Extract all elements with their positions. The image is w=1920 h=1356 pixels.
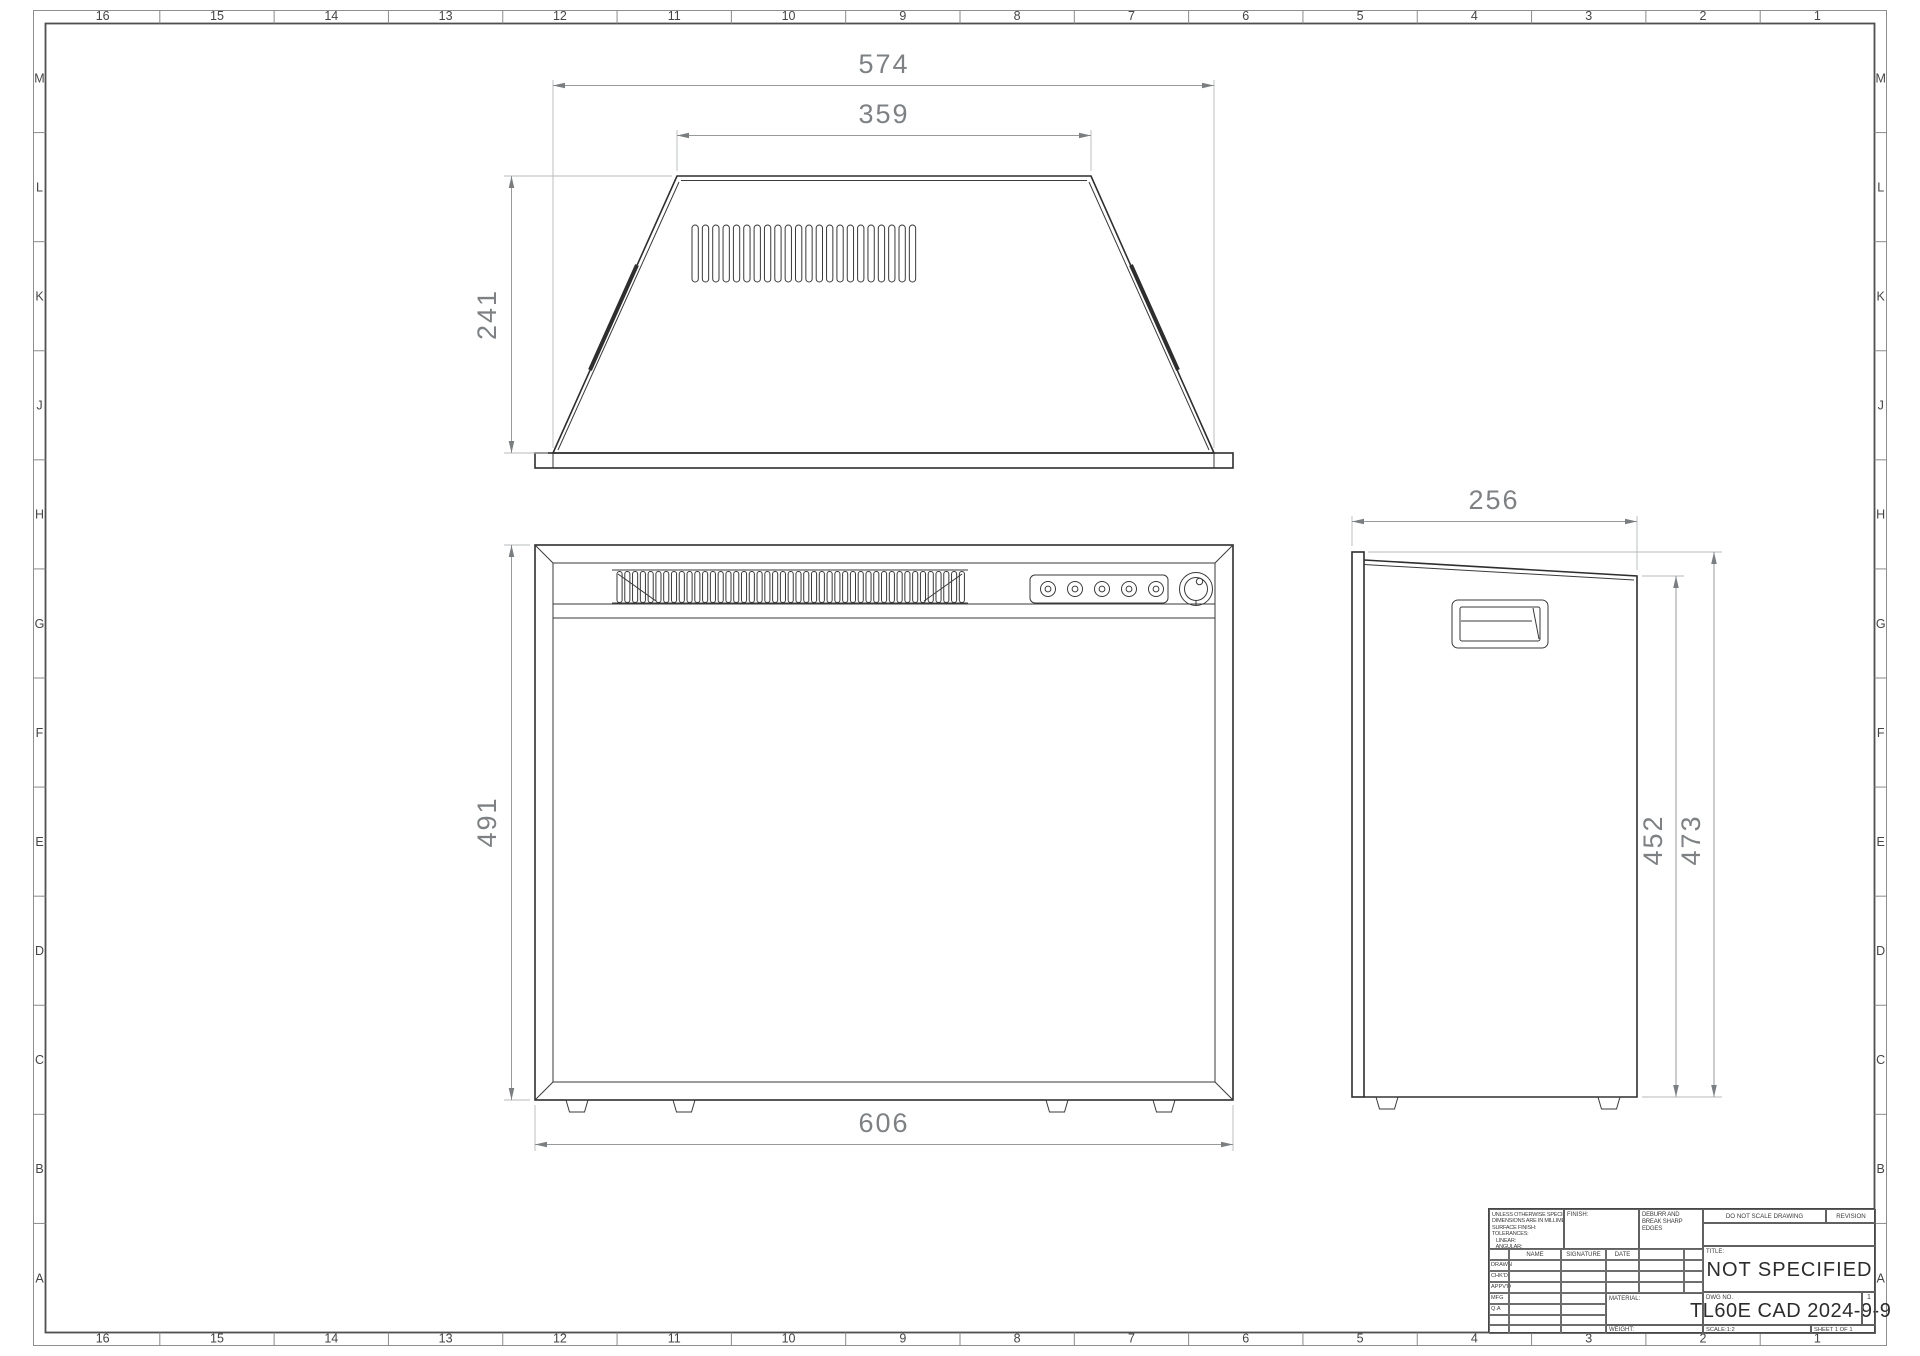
title-block-grid-cell bbox=[1561, 1293, 1606, 1304]
control-button-icon bbox=[1068, 582, 1083, 597]
side-view-front-flange bbox=[1352, 552, 1364, 1097]
grille-slat bbox=[765, 572, 770, 603]
vent-slot bbox=[733, 225, 739, 282]
front-view bbox=[535, 545, 1233, 1112]
title-block-grid-cell bbox=[1639, 1260, 1684, 1271]
zone-col-label: 4 bbox=[1471, 9, 1478, 23]
vent-slot bbox=[713, 225, 719, 282]
dim-value-473: 473 bbox=[1676, 814, 1706, 865]
zone-col-label: 14 bbox=[324, 1332, 338, 1346]
top-view bbox=[535, 176, 1233, 468]
zone-row-label: G bbox=[1876, 617, 1886, 631]
grille-slat bbox=[874, 572, 879, 603]
title-block-grid-cell bbox=[1561, 1282, 1606, 1293]
title-block-grid-cell bbox=[1489, 1325, 1509, 1335]
title-block-grid-cell bbox=[1561, 1260, 1606, 1271]
grille-slat bbox=[843, 572, 848, 603]
zone-col-label: 4 bbox=[1471, 1332, 1478, 1346]
top-view-inner-edge bbox=[558, 182, 679, 450]
title-block-grid-cell bbox=[1509, 1293, 1561, 1304]
title-block-grid-cell bbox=[1509, 1282, 1561, 1293]
border-inner-line bbox=[46, 24, 1875, 1333]
grille-slat bbox=[905, 572, 910, 603]
do-not-scale-cell: DO NOT SCALE DRAWING bbox=[1703, 1209, 1826, 1223]
vent-slot bbox=[847, 225, 853, 282]
grille-slat bbox=[882, 572, 887, 603]
top-view-hatch-band bbox=[1131, 265, 1178, 370]
front-grille bbox=[617, 572, 964, 603]
vent-slot bbox=[858, 225, 864, 282]
title-label: TITLE: bbox=[1704, 1247, 1875, 1256]
title-block-grid-cell bbox=[1561, 1315, 1606, 1325]
foot bbox=[1153, 1100, 1175, 1112]
control-button-icon bbox=[1099, 586, 1105, 592]
zone-row-label: F bbox=[36, 726, 44, 740]
zone-col-label: 12 bbox=[553, 1332, 567, 1346]
zone-col-label: 11 bbox=[668, 9, 681, 23]
zone-row-label: H bbox=[1876, 508, 1885, 522]
title-block-grid-cell bbox=[1489, 1260, 1509, 1271]
zone-row-label: B bbox=[35, 1162, 43, 1176]
zone-col-label: 16 bbox=[96, 9, 110, 23]
top-view-outline bbox=[553, 176, 1214, 453]
zone-col-label: 6 bbox=[1242, 9, 1249, 23]
grille-slat bbox=[936, 572, 941, 603]
zone-row-label: K bbox=[1877, 290, 1886, 304]
title-block-grid-cell bbox=[1606, 1282, 1639, 1293]
dimension-top-width-359: 359 bbox=[677, 99, 1091, 171]
vent-slot bbox=[806, 225, 812, 282]
grille-slat bbox=[648, 572, 653, 603]
finish-cell: FINISH: bbox=[1564, 1209, 1639, 1249]
grille-slat bbox=[749, 572, 754, 603]
control-button-icon bbox=[1122, 582, 1137, 597]
dimension-front-height-491: 491 bbox=[472, 545, 530, 1100]
grille-slat bbox=[625, 572, 630, 603]
title-block: UNLESS OTHERWISE SPECIFIED: DIMENSIONS A… bbox=[1488, 1208, 1875, 1333]
title-block-grid-cell bbox=[1684, 1271, 1703, 1282]
weight-cell: WEIGHT: bbox=[1606, 1325, 1703, 1334]
grille-slat bbox=[858, 572, 863, 603]
title-block-grid-cell bbox=[1509, 1304, 1561, 1315]
vent-slot bbox=[889, 225, 895, 282]
control-button-icon bbox=[1149, 582, 1164, 597]
zone-col-label: 1 bbox=[1814, 9, 1821, 23]
foot bbox=[566, 1100, 588, 1112]
sheet-cell: SHEET 1 OF 1 bbox=[1811, 1325, 1876, 1334]
zone-row-label: G bbox=[35, 617, 45, 631]
grille-slat bbox=[959, 572, 964, 603]
grille-slat bbox=[718, 572, 723, 603]
sheet-border bbox=[34, 11, 1887, 1346]
grille-slat bbox=[812, 572, 817, 603]
vent-slot bbox=[723, 225, 729, 282]
sheet-size-note: 1 bbox=[1863, 1293, 1875, 1301]
top-view-vent-slots bbox=[692, 225, 916, 282]
title-block-grid-cell bbox=[1561, 1304, 1606, 1315]
grille-slat bbox=[889, 572, 894, 603]
front-view-miter bbox=[535, 545, 553, 563]
foot bbox=[673, 1100, 695, 1112]
zone-col-label: 13 bbox=[439, 9, 453, 23]
zone-row-label: L bbox=[36, 180, 43, 194]
zone-row-label: K bbox=[35, 290, 44, 304]
zone-row-label: J bbox=[1878, 399, 1884, 413]
grille-slat bbox=[734, 572, 739, 603]
zone-row-label: E bbox=[35, 835, 43, 849]
vent-slot bbox=[702, 225, 708, 282]
grille-slat bbox=[788, 572, 793, 603]
grille-slat bbox=[695, 572, 700, 603]
zone-col-label: 8 bbox=[1014, 9, 1021, 23]
grille-slat bbox=[827, 572, 832, 603]
title-block-grid-cell bbox=[1561, 1249, 1606, 1260]
grille-slat bbox=[773, 572, 778, 603]
foot bbox=[1598, 1097, 1620, 1109]
zone-col-label: 11 bbox=[668, 1332, 681, 1346]
control-button-icon bbox=[1095, 582, 1110, 597]
top-view-inner-edge bbox=[1089, 182, 1209, 450]
side-view-feet bbox=[1376, 1097, 1620, 1109]
zone-col-label: 10 bbox=[782, 9, 796, 23]
dimension-front-width-606: 606 bbox=[535, 1105, 1233, 1151]
grille-slat bbox=[640, 572, 645, 603]
grille-slat bbox=[920, 572, 925, 603]
title-block-grid-cell bbox=[1489, 1271, 1509, 1282]
zone-row-label: E bbox=[1877, 835, 1885, 849]
title-block-grid-cell bbox=[1561, 1325, 1606, 1335]
zone-row-label: F bbox=[1877, 726, 1885, 740]
zone-row-label: C bbox=[1876, 1053, 1885, 1067]
finish-label: FINISH: bbox=[1565, 1210, 1638, 1219]
grille-slat bbox=[897, 572, 902, 603]
vent-slot bbox=[785, 225, 791, 282]
vent-slot bbox=[878, 225, 884, 282]
grille-slat bbox=[835, 572, 840, 603]
zone-col-label: 9 bbox=[899, 9, 906, 23]
title-block-grid-cell bbox=[1489, 1293, 1509, 1304]
dim-value-256: 256 bbox=[1468, 485, 1519, 515]
front-view-inner-frame bbox=[553, 563, 1215, 1082]
title-block-grid-cell bbox=[1684, 1282, 1703, 1293]
zone-col-label: 5 bbox=[1357, 9, 1364, 23]
zone-col-label: 13 bbox=[439, 1332, 453, 1346]
title-block-grid-cell bbox=[1684, 1249, 1703, 1260]
front-view-miter bbox=[1215, 545, 1233, 563]
drawing-sheet: 1616151514141313121211111010998877665544… bbox=[0, 0, 1920, 1356]
zone-reference-grid: 1616151514141313121211111010998877665544… bbox=[34, 9, 1887, 1346]
title-block-grid-cell bbox=[1561, 1271, 1606, 1282]
dim-value-452: 452 bbox=[1638, 814, 1668, 865]
title-cell: TITLE: NOT SPECIFIED bbox=[1703, 1246, 1876, 1292]
zone-row-label: A bbox=[1877, 1271, 1886, 1285]
drawing-title: NOT SPECIFIED bbox=[1704, 1259, 1875, 1282]
dimension-side-depth-256: 256 bbox=[1352, 485, 1637, 570]
cad-drawing-canvas: 1616151514141313121211111010998877665544… bbox=[0, 0, 1920, 1356]
foot bbox=[1046, 1100, 1068, 1112]
grille-slat bbox=[866, 572, 871, 603]
zone-col-label: 14 bbox=[324, 9, 338, 23]
grille-slat bbox=[671, 572, 676, 603]
title-block-grid-cell bbox=[1606, 1249, 1639, 1260]
sheet-size-cell: 1 bbox=[1862, 1292, 1876, 1325]
title-block-grid-cell bbox=[1489, 1304, 1509, 1315]
foot bbox=[1376, 1097, 1398, 1109]
recessed-handle bbox=[1452, 600, 1548, 648]
vent-slot bbox=[827, 225, 833, 282]
grille-slat bbox=[757, 572, 762, 603]
scale-cell: SCALE:1:2 bbox=[1703, 1325, 1811, 1334]
material-cell: MATERIAL: bbox=[1606, 1293, 1703, 1325]
zone-row-label: M bbox=[34, 71, 44, 85]
zone-col-label: 10 bbox=[782, 1332, 796, 1346]
dim-value-574: 574 bbox=[858, 49, 909, 79]
zone-col-label: 7 bbox=[1128, 9, 1135, 23]
title-block-grid-cell bbox=[1509, 1249, 1561, 1260]
dim-value-606: 606 bbox=[858, 1108, 909, 1138]
grille-slat bbox=[741, 572, 746, 603]
border-outer-line bbox=[34, 11, 1887, 1346]
title-block-grid-cell bbox=[1489, 1282, 1509, 1293]
zone-col-label: 12 bbox=[553, 9, 567, 23]
title-block-grid-cell bbox=[1509, 1271, 1561, 1282]
zone-col-label: 2 bbox=[1700, 9, 1707, 23]
dimension-side-height-473: 473 bbox=[1368, 552, 1722, 1097]
vent-slot bbox=[899, 225, 905, 282]
title-block-grid-cell bbox=[1684, 1260, 1703, 1271]
dim-value-359: 359 bbox=[858, 99, 909, 129]
revision-cell: REVISION bbox=[1826, 1209, 1876, 1223]
grille-slat bbox=[703, 572, 708, 603]
control-button-icon bbox=[1153, 586, 1159, 592]
zone-col-label: 15 bbox=[210, 1332, 224, 1346]
grille-slat bbox=[780, 572, 785, 603]
front-view-miter bbox=[1215, 1082, 1233, 1100]
grille-slat bbox=[796, 572, 801, 603]
vent-slot bbox=[692, 225, 698, 282]
title-block-grid-cell bbox=[1639, 1249, 1684, 1260]
front-view-miter bbox=[535, 1082, 553, 1100]
title-block-grid-cell bbox=[1509, 1260, 1561, 1271]
grille-slat bbox=[913, 572, 918, 603]
zone-col-label: 8 bbox=[1014, 1332, 1021, 1346]
zone-row-label: B bbox=[1877, 1162, 1885, 1176]
control-buttons bbox=[1041, 582, 1164, 597]
control-button-icon bbox=[1041, 582, 1056, 597]
zone-row-label: H bbox=[35, 508, 44, 522]
zone-col-label: 16 bbox=[96, 1332, 110, 1346]
zone-col-label: 7 bbox=[1128, 1332, 1135, 1346]
dim-value-241: 241 bbox=[472, 289, 502, 340]
grille-slat bbox=[804, 572, 809, 603]
title-block-grid-cell bbox=[1639, 1282, 1684, 1293]
control-button-icon bbox=[1126, 586, 1132, 592]
grille-slat bbox=[819, 572, 824, 603]
vent-slot bbox=[744, 225, 750, 282]
dwg-no-cell: DWG NO. TL60E CAD 2024-9-9 bbox=[1703, 1292, 1862, 1325]
zone-row-label: J bbox=[36, 399, 42, 413]
grille-slat bbox=[850, 572, 855, 603]
grille-end-diagonal bbox=[618, 574, 656, 601]
zone-row-label: D bbox=[35, 944, 44, 958]
vent-slot bbox=[816, 225, 822, 282]
title-block-grid-cell bbox=[1606, 1260, 1639, 1271]
vent-slot bbox=[868, 225, 874, 282]
grille-slat bbox=[679, 572, 684, 603]
side-view bbox=[1352, 552, 1637, 1109]
grille-slat bbox=[687, 572, 692, 603]
tolerance-note-cell: UNLESS OTHERWISE SPECIFIED: DIMENSIONS A… bbox=[1489, 1209, 1564, 1249]
revision-empty-cell bbox=[1703, 1223, 1876, 1246]
vent-slot bbox=[775, 225, 781, 282]
grille-slat bbox=[726, 572, 731, 603]
grille-slat bbox=[710, 572, 715, 603]
zone-col-label: 5 bbox=[1357, 1332, 1364, 1346]
vent-slot bbox=[909, 225, 915, 282]
grille-slat bbox=[952, 572, 957, 603]
zone-col-label: 15 bbox=[210, 9, 224, 23]
top-view-base-flange bbox=[535, 453, 1233, 468]
knob-indicator bbox=[1196, 578, 1202, 584]
zone-row-label: C bbox=[35, 1053, 44, 1067]
zone-row-label: L bbox=[1877, 180, 1884, 194]
vent-slot bbox=[754, 225, 760, 282]
title-block-grid-cell bbox=[1509, 1315, 1561, 1325]
zone-row-label: D bbox=[1876, 944, 1885, 958]
zone-row-label: M bbox=[1875, 71, 1885, 85]
vent-slot bbox=[837, 225, 843, 282]
title-block-grid-cell bbox=[1639, 1271, 1684, 1282]
title-block-grid-cell bbox=[1489, 1249, 1509, 1260]
drawing-number: TL60E CAD 2024-9-9 bbox=[1690, 1300, 1865, 1323]
dim-value-491: 491 bbox=[472, 796, 502, 847]
top-view-hatch-band bbox=[590, 265, 637, 370]
grille-slat bbox=[664, 572, 669, 603]
title-block-grid-cell bbox=[1509, 1325, 1561, 1335]
zone-col-label: 3 bbox=[1585, 9, 1592, 23]
zone-row-label: A bbox=[35, 1271, 44, 1285]
material-label: MATERIAL: bbox=[1607, 1294, 1702, 1303]
side-view-top-inner-edge bbox=[1364, 565, 1634, 581]
control-button-icon bbox=[1045, 586, 1051, 592]
vent-slot bbox=[764, 225, 770, 282]
handle-diagonal bbox=[1533, 608, 1539, 639]
title-block-grid-cell bbox=[1489, 1315, 1509, 1325]
zone-col-label: 6 bbox=[1242, 1332, 1249, 1346]
handle-inner bbox=[1460, 607, 1540, 641]
grille-slat bbox=[656, 572, 661, 603]
zone-col-label: 9 bbox=[899, 1332, 906, 1346]
deburr-note-cell: DEBURR AND BREAK SHARP EDGES bbox=[1639, 1209, 1703, 1249]
title-block-grid-cell bbox=[1606, 1271, 1639, 1282]
front-view-outline bbox=[535, 545, 1233, 1100]
control-button-icon bbox=[1072, 586, 1078, 592]
vent-slot bbox=[796, 225, 802, 282]
power-knob-icon bbox=[1180, 573, 1213, 607]
